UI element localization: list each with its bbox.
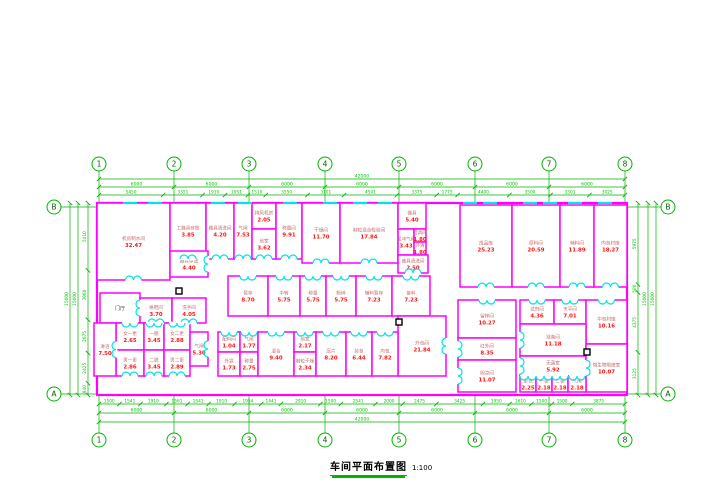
room-name: 微生物限度室 (593, 362, 621, 369)
dim-value: 2910 (295, 399, 306, 405)
dim-value: 940 (82, 385, 88, 393)
room: 暂存8.70 (228, 276, 268, 316)
room-name: 换鞋间 (149, 304, 163, 311)
room-name: 辅料暂存 (365, 290, 384, 297)
room-name: 装包 (354, 348, 364, 355)
room-name: 制粒混合检验间 (353, 227, 386, 234)
dim-value: 3425 (454, 399, 465, 405)
room-area: 2.86 (123, 365, 137, 371)
dim-value: 3960 (82, 289, 88, 300)
room: 一脱3.45 (144, 323, 164, 350)
room-area: 7.01 (563, 314, 577, 320)
dim-value: 4375 (632, 317, 638, 328)
room-name: 洗手间 (182, 304, 196, 311)
room-name: 制粒干燥 (296, 358, 315, 365)
dim-value: 1950 (491, 399, 502, 405)
room-name: 干燥间 (314, 227, 328, 234)
room-name: 成品库 (479, 240, 493, 247)
room-area: 17.84 (360, 235, 377, 241)
grid-bubble-label: 1 (97, 436, 102, 445)
room-area: 10.07 (598, 370, 615, 376)
grid-bubble-label: B (51, 203, 56, 212)
grid-bubble-label: 2 (172, 436, 177, 445)
grid-bubble-label: 2 (172, 160, 177, 169)
dim-value: 6000 (506, 408, 518, 414)
room-name: 暂存 (243, 290, 253, 297)
room: 中包材库10.16 (586, 300, 627, 344)
room-name: 器具清洗间 (209, 225, 232, 232)
room-area: 5.75 (334, 298, 348, 304)
room: 男二更2.89 (164, 350, 190, 376)
dim-value: 4400 (478, 190, 489, 196)
grid-bubble-label: 3 (247, 436, 252, 445)
room-area: 6.44 (352, 356, 366, 362)
drawing-title-block: 车间平面布置图 1:100 (330, 458, 432, 476)
dim-value: 6000 (356, 408, 368, 414)
dim-value: 6000 (431, 182, 443, 188)
room-name: 压片 (326, 348, 336, 355)
room: 外袋1.73 (218, 352, 240, 376)
room: 前室2.17 (294, 332, 316, 352)
room: 装包6.44 (346, 332, 372, 376)
room: 压片8.20 (316, 332, 346, 376)
room-area: 3.45 (147, 338, 161, 344)
room-area: 10.27 (478, 321, 495, 327)
dim-value: 5450 (126, 190, 137, 196)
room: 外包间21.84 (398, 316, 446, 376)
room-name: 准备间 (546, 334, 560, 341)
room-area: 5.92 (546, 368, 560, 374)
dim-value: 1500 (557, 399, 568, 405)
grid-bubble-label: A (51, 390, 57, 399)
room: 称量间9.91 (276, 203, 302, 259)
grid-bubble-label: 8 (623, 160, 628, 169)
dim-value: 1910 (208, 190, 219, 196)
room-area: 3.62 (257, 246, 271, 252)
room: 干燥间11.70 (302, 203, 340, 263)
room-area: 3.70 (149, 312, 163, 318)
room-area: 3.45 (147, 365, 161, 371)
dim-value: 4501 (365, 190, 376, 196)
room: 女二更2.88 (164, 323, 190, 350)
room-name: 混合 (271, 348, 281, 355)
room-area: 4.40 (182, 266, 196, 272)
equipment-marker (176, 288, 182, 294)
dim-value: 15000 (64, 292, 70, 306)
room: 辅料暂存7.23 (356, 276, 392, 316)
dim-value: 1541 (124, 399, 135, 405)
room: 原料间20.59 (512, 205, 560, 287)
room: 微生物限度室10.07 (586, 344, 627, 392)
room: 器具存放4.40 (170, 251, 208, 277)
room: 排风机房2.05 (252, 203, 276, 229)
drawing-title: 车间平面布置图 (330, 458, 407, 476)
room-name: 男一更 (123, 358, 137, 364)
room-area: 2.75 (242, 366, 256, 372)
dim-value: 3301 (565, 190, 576, 196)
room-name: 洁具间 (413, 229, 427, 236)
room-name: 红外间 (480, 343, 494, 350)
room-area: 7.50 (98, 351, 112, 357)
dim-value: 2541 (353, 399, 364, 405)
dim-value: 42000 (355, 417, 370, 423)
room: 制粒干燥2.34 (294, 352, 316, 376)
dim-value: 2475 (414, 399, 425, 405)
room-area: 2.18 (570, 386, 584, 392)
room-name: 淋浴 (100, 343, 110, 350)
room-area: 8.20 (324, 356, 338, 362)
room-name: 留样间 (480, 313, 494, 320)
equipment-marker (396, 319, 402, 325)
room: 前室3.62 (252, 229, 276, 259)
dim-value: 15000 (72, 292, 78, 306)
dim-value: 1775 (442, 190, 453, 196)
room-name: 外袋 (224, 358, 234, 365)
room-area: 25.23 (477, 248, 494, 254)
dim-value: 5410 (82, 231, 88, 242)
room-name: 女一更 (123, 330, 137, 337)
room-name: 称量间 (282, 225, 296, 232)
room-area: 5.75 (306, 298, 320, 304)
dim-value: 6000 (206, 408, 218, 414)
room-area: 2.65 (123, 338, 137, 344)
dim-value: 6000 (131, 408, 143, 414)
grid-bubble-label: 1 (97, 160, 102, 169)
grid-bubble-label: 8 (623, 436, 628, 445)
grid-bubble-label: B (665, 203, 670, 212)
room-name: 机房制水间 (122, 235, 145, 242)
room: 留样间10.27 (458, 300, 516, 338)
room-area: 21.84 (413, 348, 430, 354)
dim-value: 15000 (642, 292, 648, 306)
room: 天平间7.01 (554, 300, 586, 324)
room: 红外间8.35 (458, 338, 516, 360)
grid-bubble-label: 5 (397, 160, 402, 169)
dim-value: 1910 (148, 399, 159, 405)
dim-value: 6000 (431, 408, 443, 414)
room-area: 2.34 (298, 366, 312, 372)
grid-bubble-label: 7 (547, 436, 552, 445)
dim-value: 15000 (650, 292, 656, 306)
room-name: 辅料间 (570, 240, 584, 247)
grid-bubble-label: 5 (397, 436, 402, 445)
room-area: 9.40 (269, 356, 283, 362)
room-area: 4.36 (530, 314, 544, 320)
dim-value: 2675 (82, 331, 88, 342)
room-name: 中转 (279, 290, 289, 297)
grid-bubble-label: A (665, 390, 671, 399)
room: 气闸5.30 (190, 332, 208, 366)
grid-bubble-label: 6 (473, 436, 478, 445)
room-name: 备料 (406, 290, 416, 297)
room-name: 试剂间 (530, 306, 544, 313)
room-area: 1.77 (242, 344, 256, 350)
dim-value: 1441 (266, 399, 277, 405)
room: 准备间11.18 (520, 324, 586, 356)
dim-value: 2425 (82, 362, 88, 373)
grid-bubble-label: 7 (547, 160, 552, 169)
room: 试剂间4.36 (520, 300, 554, 324)
dim-value: 2000 (384, 399, 395, 405)
room: 二脱3.45 (144, 350, 164, 376)
room-name: 前室 (259, 238, 269, 245)
dim-value: 1561 (172, 399, 183, 405)
room: 女一更2.65 (116, 323, 144, 350)
dim-value: 6000 (281, 408, 293, 414)
room-name: 外包间 (415, 340, 429, 347)
room-area: 1.04 (222, 344, 236, 350)
room: 机房制水间32.47 (97, 203, 170, 280)
grid-bubble-label: 6 (473, 160, 478, 169)
room-area: 7.82 (378, 356, 392, 362)
room-area: 2.05 (257, 218, 271, 224)
dim-value: 6000 (206, 182, 218, 188)
dim-value: 6000 (506, 182, 518, 188)
dim-value: 1541 (193, 399, 204, 405)
room: 洗手间4.05 (172, 298, 206, 323)
room: 器具5.40 (398, 203, 426, 229)
room-name: 一脱 (149, 330, 159, 337)
dim-value: 5975 (632, 238, 638, 249)
dim-value: 6000 (281, 182, 293, 188)
room: 器具清洗间2.50 (398, 255, 428, 273)
room: 配料间1.04 (218, 332, 240, 352)
room-name: 器具清洗间 (402, 258, 425, 265)
dim-value: 3875 (593, 399, 604, 405)
grid-bubble-label: 3 (247, 160, 252, 169)
drawing-scale: 1:100 (412, 464, 432, 472)
dim-value: 6000 (581, 182, 593, 188)
room-name: 气闸 (194, 343, 204, 350)
dim-value: 1500 (325, 399, 336, 405)
room-area: 11.07 (478, 378, 495, 384)
room-name: 天平间 (563, 306, 577, 313)
room: 成品库25.23 (460, 205, 512, 287)
dim-value: 1500 (536, 399, 547, 405)
room-name: 内包 (380, 348, 390, 355)
room: 内包材库18.27 (594, 205, 627, 287)
room: 男一更2.86 (116, 350, 144, 376)
room: 内包7.82 (372, 332, 398, 376)
room-area: 32.47 (125, 243, 142, 249)
room-area: 8.70 (241, 298, 255, 304)
room-name: 排风机房 (255, 210, 274, 217)
room-area: 5.40 (405, 218, 419, 224)
room-name: 女二更 (170, 330, 184, 337)
room-area: 20.59 (527, 248, 544, 254)
dim-value: 3351 (177, 190, 188, 196)
room: 中转5.75 (268, 276, 300, 316)
room-area: 9.91 (282, 233, 296, 239)
room: 气闸2.18 (568, 376, 586, 392)
room-area: 8.35 (480, 351, 494, 357)
room: 备料7.23 (392, 276, 430, 316)
room-area: 10.16 (598, 324, 615, 330)
room-name: 气闸 (238, 225, 248, 232)
room-area: 7.23 (404, 298, 418, 304)
room-area: 7.23 (367, 298, 381, 304)
dim-value: 1500 (104, 399, 115, 405)
dim-value: 1951 (231, 190, 242, 196)
room: 一更2.18 (536, 376, 552, 392)
room: 二更2.18 (552, 376, 568, 392)
room-area: 11.18 (544, 342, 561, 348)
room: 淋浴7.50 (94, 323, 116, 376)
floor-plan-svg: 4200060006000600060006000600060005450335… (0, 0, 713, 504)
room: 无菌室5.92 (520, 356, 586, 376)
equipment-marker (584, 349, 590, 355)
room-name: 称量 (244, 358, 254, 365)
room: 门厅 (100, 293, 140, 323)
room-area: 2.17 (298, 344, 312, 350)
room-area: 5.75 (277, 298, 291, 304)
room: 气闸7.53 (234, 203, 252, 259)
dim-value: 1510 (251, 190, 262, 196)
room-area: 2.88 (170, 338, 184, 344)
dim-value: 3550 (281, 190, 292, 196)
dim-value: 1610 (515, 399, 526, 405)
cad-drawing-canvas: 4200060006000600060006000600060005450335… (0, 0, 713, 504)
dim-value: 3500 (524, 190, 535, 196)
dim-value: 6000 (581, 408, 593, 414)
plan-layer: 机房制水间32.47工器具存放3.85器具清洗间4.20气闸7.53排风机房2.… (94, 203, 627, 395)
room: 更衣2.25 (520, 376, 536, 392)
room-name: 外清 (415, 242, 425, 249)
room-name: 配料间 (222, 336, 236, 343)
room-area: 2.89 (170, 365, 184, 371)
room-name: 中包材库 (597, 316, 616, 323)
room: 称量5.75 (300, 276, 326, 316)
room-name: 工器具存放 (177, 225, 200, 232)
room-area: 4.05 (182, 312, 196, 318)
room-name: 内包材库 (601, 240, 620, 247)
dim-value: 1954 (242, 399, 253, 405)
dim-value: 6000 (356, 182, 368, 188)
room-area: 2.18 (537, 386, 551, 392)
room: 称量2.75 (240, 352, 258, 376)
room-area: 2.25 (521, 386, 535, 392)
dim-value: 1910 (216, 399, 227, 405)
room-area: 1.73 (222, 366, 236, 372)
room: 洁具间1.80 (413, 229, 427, 243)
dim-value: 3025 (602, 190, 613, 196)
room: 换鞋间3.70 (140, 298, 172, 323)
room-area: 3.85 (181, 233, 195, 239)
dim-value: 3375 (411, 190, 422, 196)
grid-bubble-label: 4 (323, 160, 328, 169)
room-name: 器具 (407, 211, 417, 217)
room-name: 男二更 (170, 358, 184, 364)
room-area: 18.27 (602, 248, 619, 254)
room: 外清1.80 (413, 242, 427, 256)
room-name: 门厅 (115, 304, 125, 312)
room-area: 11.89 (568, 248, 585, 254)
room-area: 3.43 (399, 244, 413, 250)
room: 混合9.40 (258, 332, 294, 376)
room-name: 原料间 (529, 240, 543, 247)
room-area: 11.70 (312, 235, 329, 241)
room: 辅料间11.89 (560, 205, 594, 287)
dim-value: 42000 (355, 174, 370, 180)
room-name: 无菌室 (546, 360, 560, 367)
room-area: 4.20 (213, 233, 227, 239)
room: 阴凉间11.07 (458, 360, 516, 392)
room: 粉碎5.75 (326, 276, 356, 316)
room-name: 二脱 (149, 357, 159, 364)
room-name: 阴凉间 (480, 370, 494, 377)
room-name: 粉碎 (336, 290, 346, 297)
room-area: 7.53 (236, 233, 250, 239)
dim-value: 3125 (632, 368, 638, 379)
room: 制粒混合检验间17.84 (340, 203, 398, 263)
room-area: 2.18 (553, 386, 567, 392)
grid-bubble-label: 4 (323, 436, 328, 445)
dim-value: 6000 (131, 182, 143, 188)
room: 器具清洗间4.20 (206, 203, 234, 259)
room-name: 称量 (308, 290, 318, 297)
dim-value: 3101 (320, 190, 331, 196)
